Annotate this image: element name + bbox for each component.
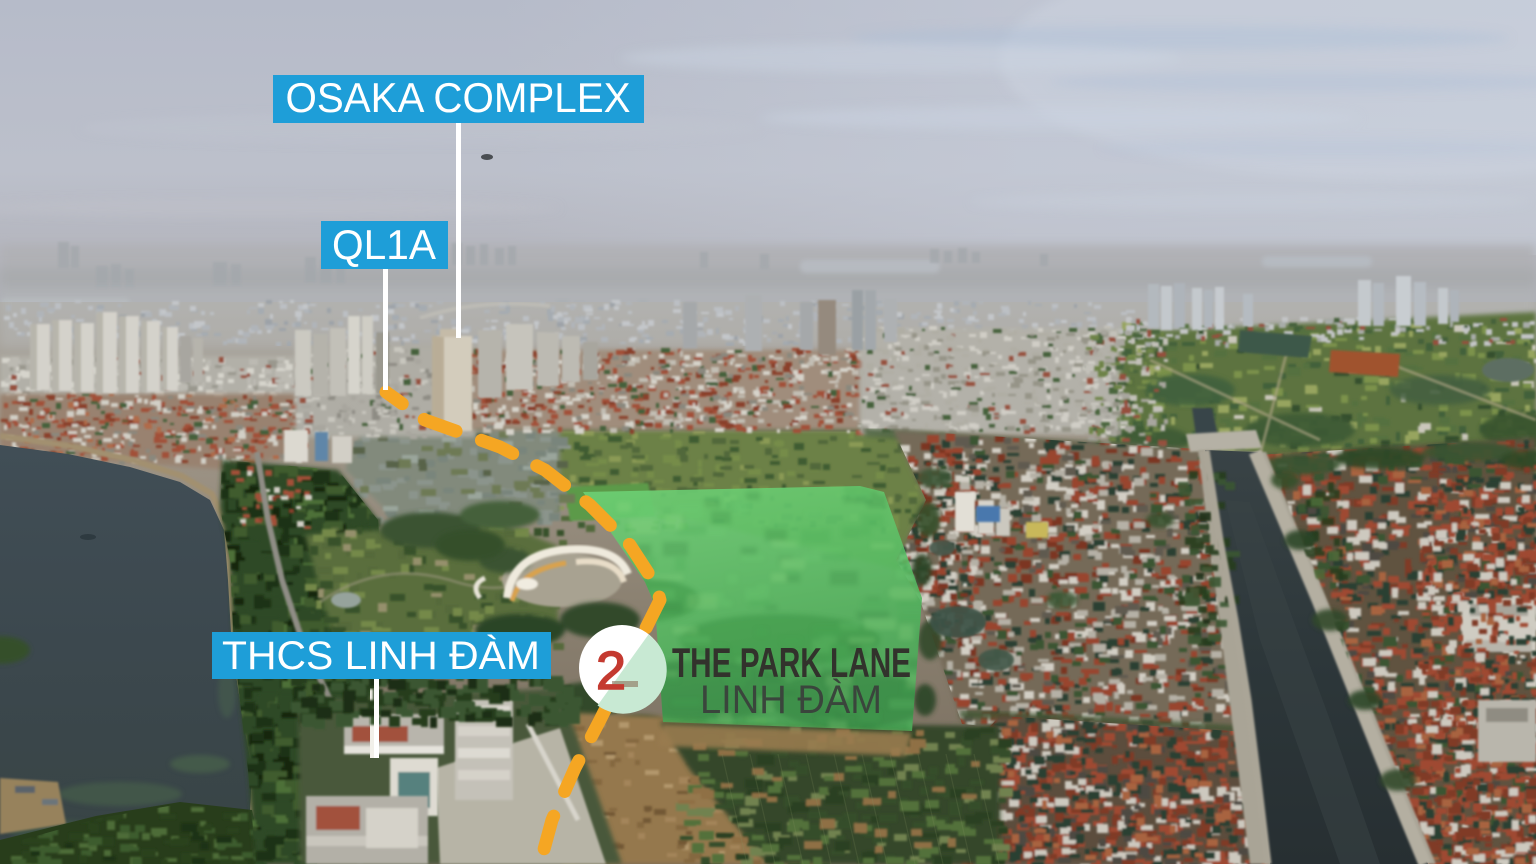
svg-text:2: 2	[596, 641, 626, 701]
svg-text:OSAKA COMPLEX: OSAKA COMPLEX	[286, 74, 631, 121]
svg-text:THCS LINH ĐÀM: THCS LINH ĐÀM	[222, 633, 540, 678]
svg-text:QL1A: QL1A	[332, 221, 436, 268]
svg-text:LINH ĐÀM: LINH ĐÀM	[700, 677, 882, 722]
